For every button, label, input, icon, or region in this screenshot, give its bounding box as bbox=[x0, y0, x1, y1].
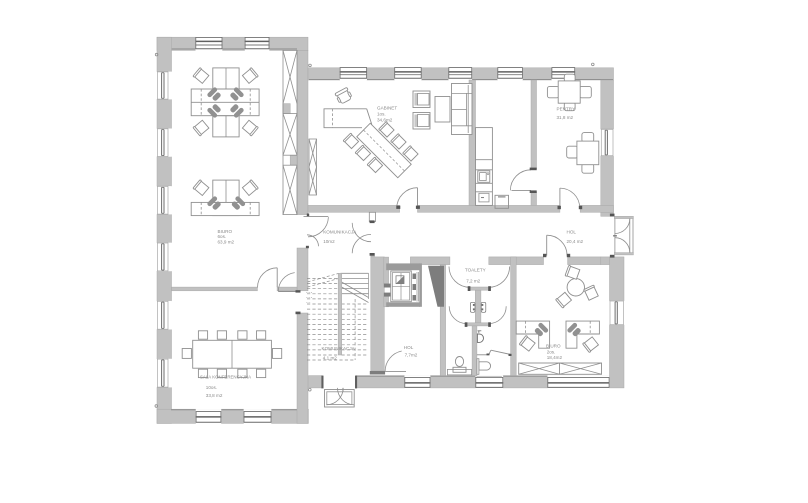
svg-text:1os.: 1os. bbox=[377, 112, 386, 117]
svg-text:34,6m2: 34,6m2 bbox=[377, 118, 393, 123]
svg-text:33,8 m2: 33,8 m2 bbox=[206, 393, 223, 398]
svg-text:SALA KONFERENCYJNA: SALA KONFERENCYJNA bbox=[200, 375, 251, 380]
svg-text:4,1 m2: 4,1 m2 bbox=[323, 355, 337, 360]
svg-text:31,8 m2: 31,8 m2 bbox=[557, 115, 574, 120]
svg-text:7,7m2: 7,7m2 bbox=[405, 352, 418, 357]
svg-text:PENTRY: PENTRY bbox=[557, 106, 576, 111]
svg-text:7,2 m2: 7,2 m2 bbox=[466, 278, 480, 283]
svg-text:GABINET: GABINET bbox=[377, 106, 397, 111]
svg-text:10os.: 10os. bbox=[206, 385, 217, 390]
svg-text:63,9 m2: 63,9 m2 bbox=[218, 239, 235, 244]
svg-text:TOALETY: TOALETY bbox=[465, 267, 486, 272]
svg-text:HOL: HOL bbox=[404, 345, 414, 350]
svg-text:BIURO: BIURO bbox=[546, 343, 561, 348]
svg-text:KOMUNIKACJA: KOMUNIKACJA bbox=[323, 229, 357, 234]
svg-text:20,4 m2: 20,4 m2 bbox=[567, 239, 584, 244]
svg-text:2os.: 2os. bbox=[547, 349, 556, 354]
svg-text:KOMUNIKACJA: KOMUNIKACJA bbox=[322, 346, 356, 351]
svg-text:18,4m2: 18,4m2 bbox=[547, 355, 563, 360]
svg-text:HOL: HOL bbox=[567, 229, 577, 234]
svg-text:10m2: 10m2 bbox=[323, 239, 335, 244]
